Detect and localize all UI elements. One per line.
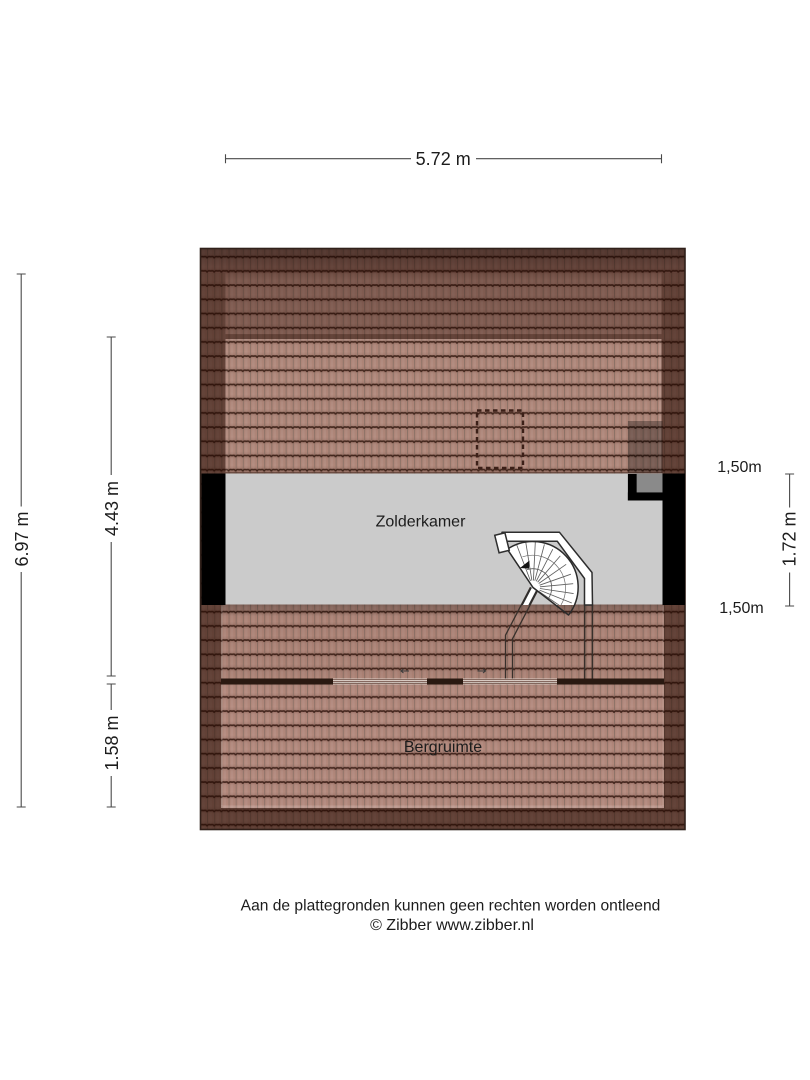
svg-text:4.43 m: 4.43 m bbox=[102, 481, 122, 536]
svg-text:6.97 m: 6.97 m bbox=[12, 511, 32, 566]
svg-text:1,50m: 1,50m bbox=[717, 459, 761, 476]
svg-text:5.72 m: 5.72 m bbox=[416, 149, 471, 169]
svg-text:1.58 m: 1.58 m bbox=[102, 715, 122, 770]
svg-text:Zolderkamer: Zolderkamer bbox=[376, 514, 466, 531]
svg-text:Bergruimte: Bergruimte bbox=[404, 739, 482, 756]
svg-text:© Zibber www.zibber.nl: © Zibber www.zibber.nl bbox=[370, 917, 534, 934]
svg-text:1.72 m: 1.72 m bbox=[780, 511, 800, 566]
svg-text:1,50m: 1,50m bbox=[719, 600, 763, 617]
svg-text:Aan de plattegronden kunnen ge: Aan de plattegronden kunnen geen rechten… bbox=[241, 897, 661, 914]
